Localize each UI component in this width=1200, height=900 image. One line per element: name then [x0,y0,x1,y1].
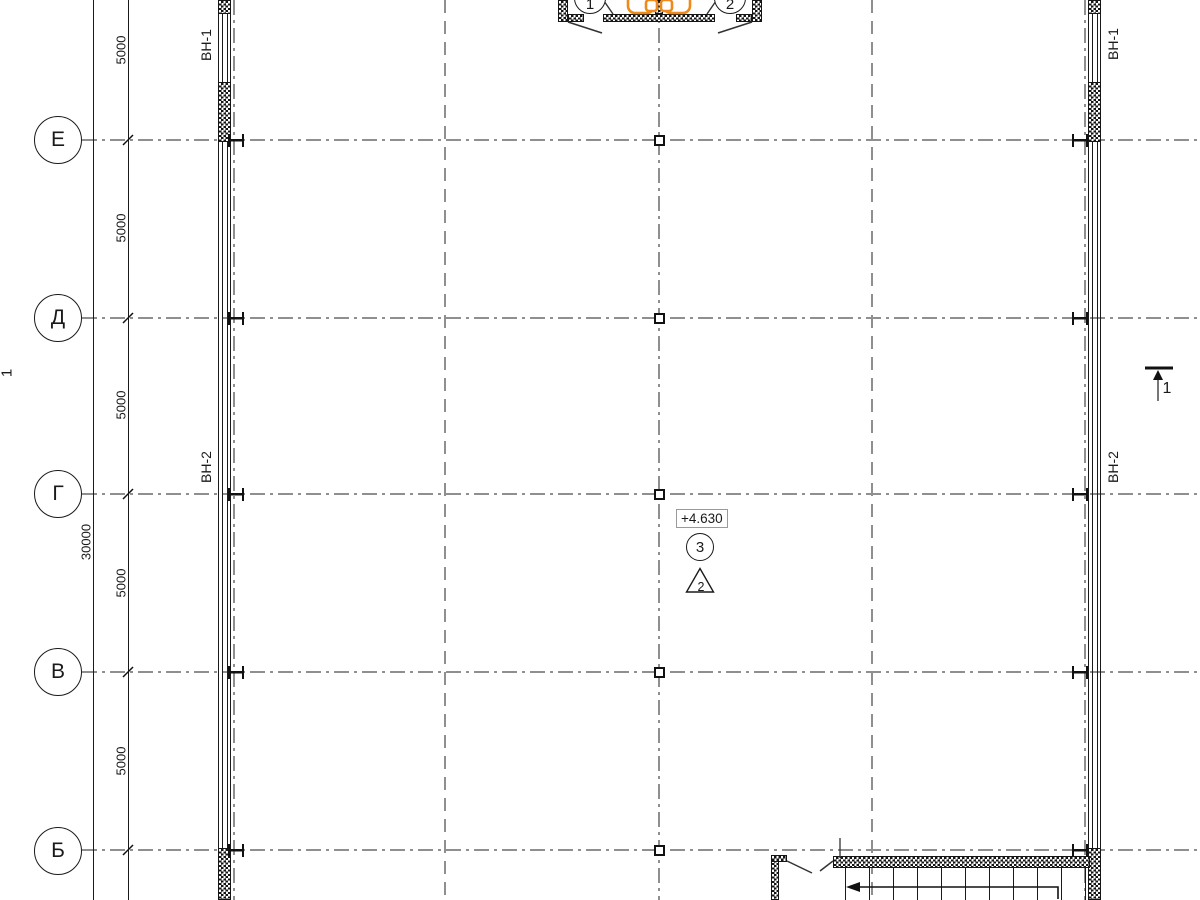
wall-label-vn1-right: ВН-1 [1105,28,1121,60]
column-marker [654,135,665,146]
elevation-value: +4.630 [681,511,723,526]
stair-tread [965,868,966,900]
hatched-wall-segment [771,855,787,862]
wall-axis-tick-right [1072,844,1088,857]
wall-label-vn1-left: ВН-1 [198,29,214,61]
axis-grid-line-horizontal [82,671,1200,673]
stair-tread [893,868,894,900]
column-bubble-label: 1 [586,0,594,13]
wall-axis-tick-right [1072,488,1088,501]
axis-label: Е [51,128,65,152]
axis-bubble-G: Г [34,470,82,518]
section-mark-arrowhead [1153,370,1163,380]
column-marker [654,313,665,324]
wall-axis-tick-left [228,312,244,325]
bay-dimension: 5000 [114,391,129,420]
stair-direction-arrow [846,882,860,892]
hatched-wall-segment [833,856,1090,868]
wall-axis-tick-right [1072,312,1088,325]
wall-axis-tick-left [228,844,244,857]
column-bubble-2: 2 [714,0,746,14]
hatched-wall-segment [1088,0,1101,14]
axis-grid-line-horizontal [82,317,1200,319]
column-bubble-label: 2 [726,0,734,13]
hatched-wall-segment [752,0,762,22]
wall-axis-tick-left [228,666,244,679]
stair-tread [869,868,870,900]
hatched-wall-segment [558,0,568,22]
dimension-line-outer [93,0,94,900]
floor-plan-canvas: Е Д Г В Б 1 2 5000 5000 5000 5000 5000 3… [0,0,1200,900]
stair-tread [941,868,942,900]
column-marker [654,667,665,678]
wall-label-vn2-left: ВН-2 [198,451,214,483]
wall-axis-tick-left [228,488,244,501]
stair-direction-line [858,887,1058,899]
stair-tread [845,868,846,900]
axis-grid-line-horizontal [82,139,1200,141]
hatched-wall-segment [736,14,752,22]
bay-dimension: 5000 [114,747,129,776]
stair-tread [989,868,990,900]
wall-axis-tick-right [1072,134,1088,147]
entrance-splay-line-right [718,22,752,33]
axis-label: Д [51,306,65,330]
column-bubble-1: 1 [574,0,606,14]
total-dimension: 30000 [79,524,94,560]
axis-label: В [51,660,65,684]
linework-overlay [0,0,1200,900]
elevation-mark: +4.630 [676,509,728,528]
stair-tread [1061,868,1062,900]
axis-grid-line-horizontal [82,493,1200,495]
column-marker [654,845,665,856]
section-mark-right-number: 1 [1163,380,1172,398]
grid-line-vertical-dashed [871,0,873,900]
axis-label: Г [52,482,63,506]
hatched-wall-segment [568,14,584,22]
fixture-outline [628,0,654,13]
bay-dimension: 5000 [114,214,129,243]
fixture-outline [664,0,690,13]
detail-triangle-number: 2 [698,580,705,594]
entrance-splay-line-left [568,22,602,33]
axis-grid-line-horizontal [82,849,1200,851]
wall-axis-tick-left [228,134,244,147]
stair-tread [1013,868,1014,900]
door-leaf-line-left [787,861,812,873]
hatched-wall-segment [655,0,663,14]
hatched-wall-segment [218,0,231,14]
bay-dimension: 5000 [114,36,129,65]
bay-dimension: 5000 [114,569,129,598]
wall-axis-tick-right [1072,666,1088,679]
axis-label: Б [51,839,65,863]
bubble-leader-line-left [604,1,613,14]
axis-bubble-E: Е [34,116,82,164]
stair-tread [917,868,918,900]
section-mark-left-number: 1 [0,369,16,377]
node-callout-circle: 3 [686,533,714,561]
stair-tread [1037,868,1038,900]
stair-tread [1085,868,1086,900]
wall-label-vn2-right: ВН-2 [1105,451,1121,483]
hatched-wall-segment [603,14,715,22]
axis-bubble-V: В [34,648,82,696]
hatched-wall-segment [1088,82,1101,142]
column-marker [654,489,665,500]
axis-bubble-D: Д [34,294,82,342]
axis-bubble-B: Б [34,827,82,875]
grid-line-vertical-dashed [444,0,446,900]
node-callout-number: 3 [696,539,704,556]
door-leaf-line-right [820,861,833,871]
